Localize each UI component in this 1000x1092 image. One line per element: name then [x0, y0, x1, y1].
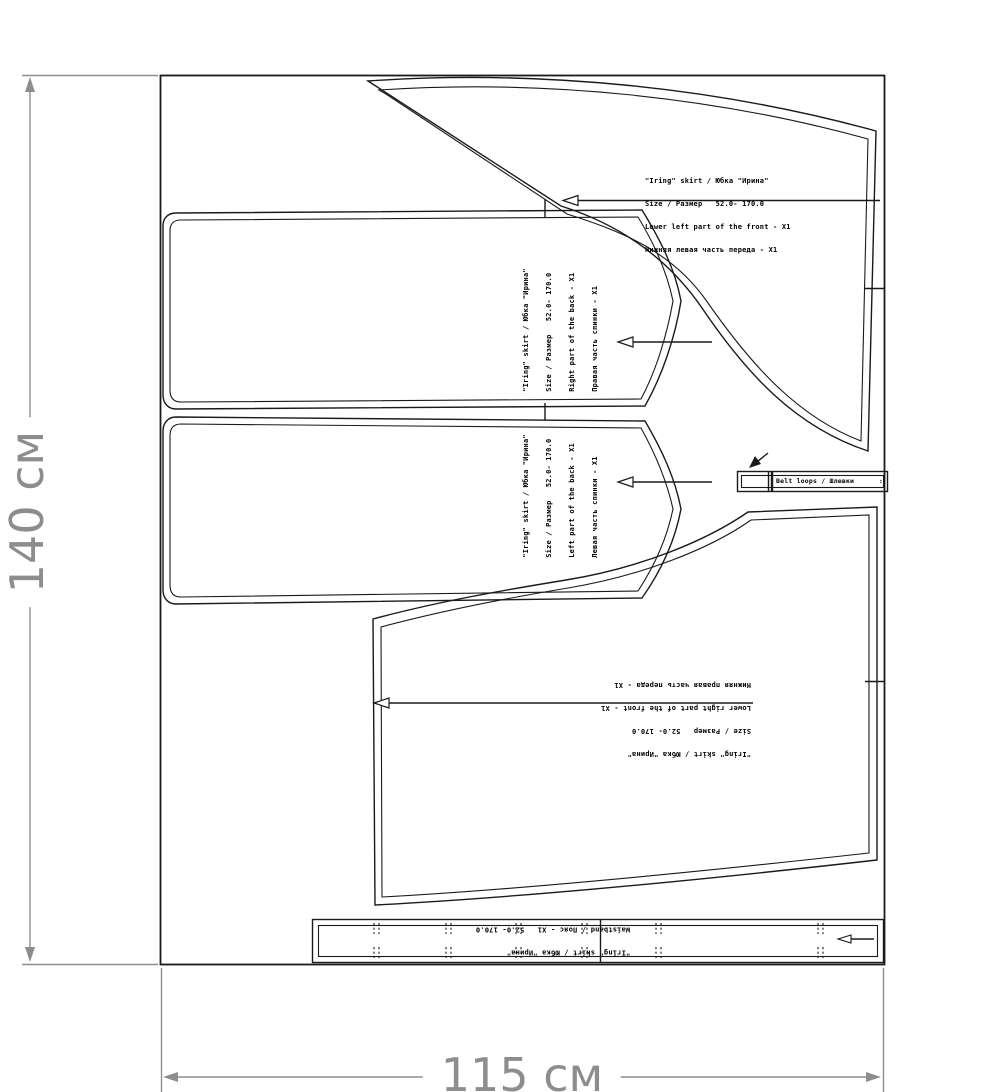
fabric-height-dimension-label: 140 см	[4, 417, 50, 607]
grain-arrow	[838, 935, 874, 943]
piece-back-right	[163, 210, 712, 409]
label-belt-loops: Belt loops / Шлевки :	[776, 478, 883, 486]
label-line: Left part of the back - X1	[569, 434, 577, 558]
label-line: Size / Размер 52.0- 170.0	[601, 727, 751, 735]
label-line: Size / Размер 52.0- 170.0	[645, 201, 791, 209]
label-lower-left-front: "Iring" skirt / Юбка "Ирина" Size / Разм…	[645, 163, 791, 269]
label-line: "Iring" skirt / Юбка "Ирина"	[601, 749, 751, 757]
label-line: "Iring" skirt / Юбка "Ирина"	[476, 948, 631, 956]
label-line: Нижняя левая часть переда - X1	[645, 247, 791, 255]
label-line: Левая часть спинки - X1	[591, 434, 599, 558]
label-line: Нижняя правая часть переда - X1	[601, 681, 751, 689]
label-back-left: "Iring" skirt / Юбка "Ирина" Size / Разм…	[508, 434, 614, 558]
label-line: "Iring" skirt / Юбка "Ирина"	[523, 268, 531, 392]
piece-belt-loops	[738, 453, 888, 492]
grain-arrow	[749, 453, 768, 468]
label-waistband: "Iring" skirt / Юбка "Ирина" Waistband /…	[476, 910, 631, 971]
label-line: Waistband / Пояс - X1 52.0- 170.0	[476, 925, 631, 933]
label-back-right: "Iring" skirt / Юбка "Ирина" Size / Разм…	[508, 268, 614, 392]
label-line: Right part of the back - X1	[569, 268, 577, 392]
label-lower-right-front: "Iring" skirt / Юбка "Ирина" Size / Разм…	[601, 666, 751, 772]
label-line: Size / Размер 52.0- 170.0	[546, 434, 554, 558]
label-line: "Iring" skirt / Юбка "Ирина"	[523, 434, 531, 558]
piece-lower-left-front-seamline	[379, 87, 868, 441]
grain-arrow	[618, 477, 712, 487]
piece-lower-left-front-cutline	[368, 77, 876, 451]
arrow-up-icon	[25, 77, 35, 92]
arrow-left-icon	[163, 1072, 178, 1082]
label-line: "Iring" skirt / Юбка "Ирина"	[645, 178, 791, 186]
label-line: Lower left part of the front - X1	[645, 224, 791, 232]
fabric-width-dimension-label: 115 см	[423, 1052, 621, 1092]
label-line: Lower right part of the front - X1	[601, 704, 751, 712]
arrow-right-icon	[866, 1072, 881, 1082]
arrow-down-icon	[25, 947, 35, 962]
pattern-layout-canvas: "Iring" skirt / Юбка "Ирина" Size / Разм…	[0, 0, 1000, 1092]
label-line: Size / Размер 52.0- 170.0	[546, 268, 554, 392]
piece-lower-left-front	[368, 77, 884, 451]
label-line: Правая часть спинки - X1	[591, 268, 599, 392]
